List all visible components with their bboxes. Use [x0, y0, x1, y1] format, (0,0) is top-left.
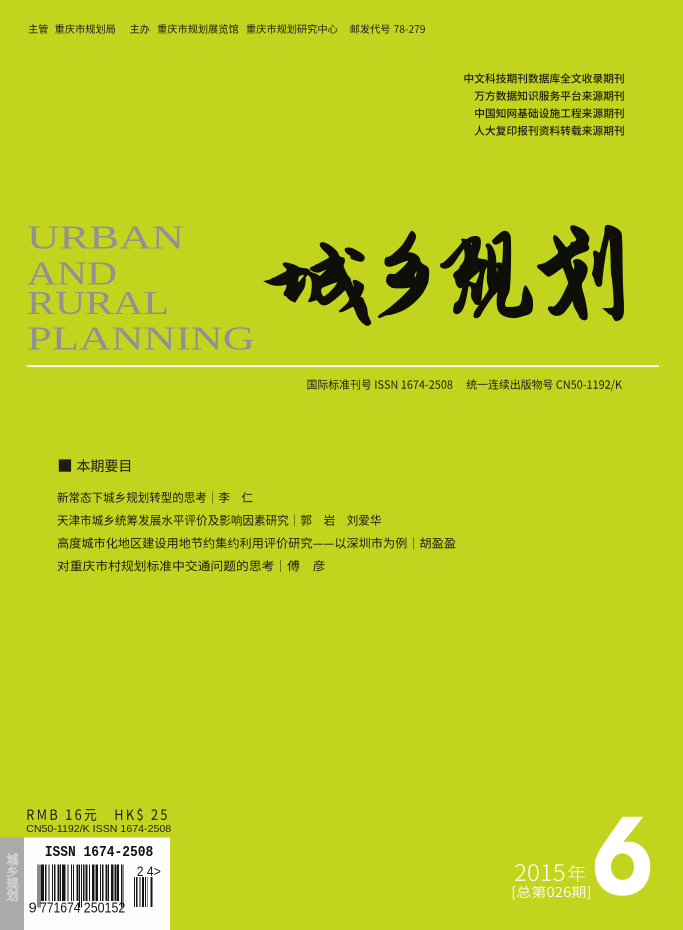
- svg-text:RURAL: RURAL: [27, 285, 169, 322]
- svg-text:771674: 771674: [40, 901, 81, 917]
- svg-text:2 4>: 2 4>: [137, 864, 161, 879]
- svg-text:PLANNING: PLANNING: [27, 320, 255, 357]
- svg-text:9: 9: [29, 901, 37, 917]
- svg-text:URBAN: URBAN: [27, 219, 184, 256]
- svg-text:CN50-1192/K ISSN 1674-2508: CN50-1192/K ISSN 1674-2508: [26, 824, 171, 835]
- svg-text:ISSN 1674-2508: ISSN 1674-2508: [45, 845, 154, 861]
- svg-text:250152: 250152: [84, 901, 126, 917]
